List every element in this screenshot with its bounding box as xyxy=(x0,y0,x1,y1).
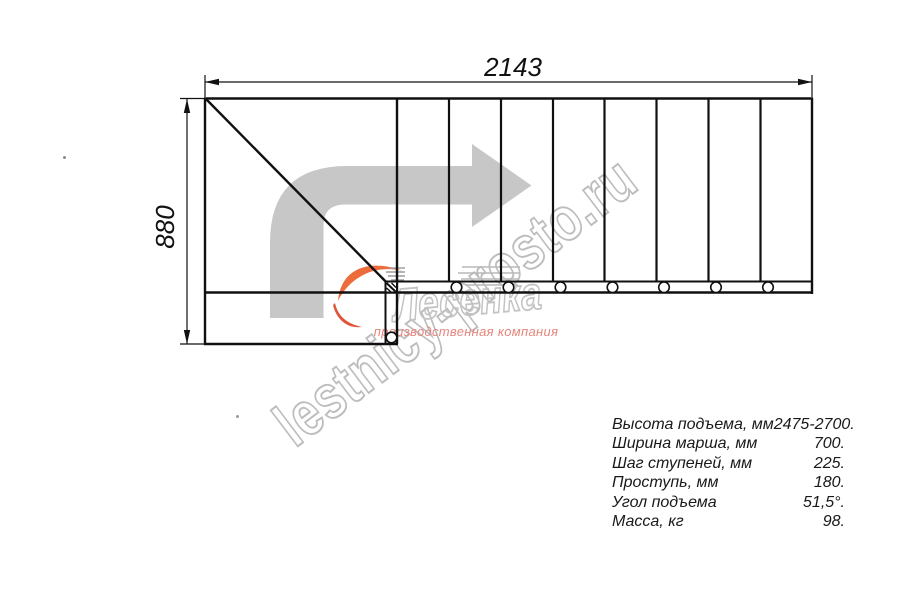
landing-diagonal-line xyxy=(206,99,396,292)
artifact-dot xyxy=(63,156,66,159)
dimension-height: 880 xyxy=(150,98,205,344)
step-divider-lines xyxy=(449,98,761,283)
dimension-width: 2143 xyxy=(205,52,812,97)
dim-arrow-up-icon xyxy=(184,99,190,113)
spec-value: 51,5°. xyxy=(803,493,845,512)
spec-label: Угол подъема xyxy=(612,493,717,512)
spec-row: Масса, кг 98. xyxy=(612,512,845,531)
stair-outline xyxy=(204,98,813,345)
dim-arrow-right-icon xyxy=(798,79,812,85)
spec-row: Проступь, мм 180. xyxy=(612,473,845,492)
spec-label: Шаг ступеней, мм xyxy=(612,454,752,473)
dim-arrow-down-icon xyxy=(184,330,190,344)
spec-label: Высота подъема, мм xyxy=(612,415,774,434)
spec-row: Шаг ступеней, мм 225. xyxy=(612,454,845,473)
spec-row: Угол подъема 51,5°. xyxy=(612,493,845,512)
junction-hatch xyxy=(387,283,397,293)
artifact-dot xyxy=(236,415,239,418)
specs-table: Высота подъема, мм 2475-2700. Ширина мар… xyxy=(612,415,845,531)
spec-value: 225. xyxy=(814,454,845,473)
connector-circles xyxy=(386,282,773,343)
dimension-width-label: 2143 xyxy=(483,52,542,82)
spec-row: Высота подъема, мм 2475-2700. xyxy=(612,415,845,434)
dim-arrow-left-icon xyxy=(205,79,219,85)
spec-value: 98. xyxy=(823,512,845,531)
spec-row: Ширина марша, мм 700. xyxy=(612,434,845,453)
stair-drawing-page: lestnicy-prosto.ru Лесенка производствен… xyxy=(0,0,900,600)
spec-label: Ширина марша, мм xyxy=(612,434,757,453)
dimension-height-label: 880 xyxy=(150,205,180,249)
spec-value: 180. xyxy=(814,473,845,492)
spec-value: 700. xyxy=(814,434,845,453)
spec-label: Проступь, мм xyxy=(612,473,718,492)
spec-label: Масса, кг xyxy=(612,512,684,531)
spec-value: 2475-2700. xyxy=(774,415,855,434)
